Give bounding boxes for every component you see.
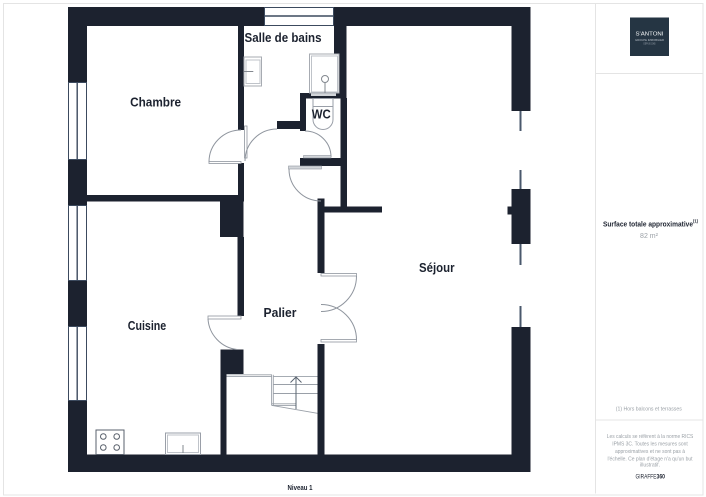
svg-text:Salle de bains: Salle de bains	[245, 30, 322, 45]
svg-text:IPMS 3C. Toutes les mesures so: IPMS 3C. Toutes les mesures sont	[612, 441, 688, 447]
svg-text:360: 360	[657, 474, 666, 481]
svg-text:82 m²: 82 m²	[640, 233, 659, 240]
svg-text:GIRAFFE: GIRAFFE	[636, 474, 657, 481]
svg-text:(1): (1)	[693, 219, 699, 224]
svg-text:S'ANTONI: S'ANTONI	[636, 32, 664, 38]
svg-text:Chambre: Chambre	[130, 95, 181, 110]
svg-text:WC: WC	[312, 107, 332, 122]
svg-text:Surface totale approximative: Surface totale approximative	[603, 219, 693, 228]
svg-text:illustratif.: illustratif.	[640, 463, 660, 469]
svg-text:Les calculs se réfèrent à la n: Les calculs se réfèrent à la norme RICS	[607, 434, 694, 440]
svg-text:l'échelle. Ce plan d'étage n'a: l'échelle. Ce plan d'étage n'a qu'un but	[608, 456, 693, 462]
svg-text:approximatives et ne sont pas: approximatives et ne sont pas à	[615, 449, 686, 455]
svg-text:GROUPE IMMOBILIER: GROUPE IMMOBILIER	[635, 38, 664, 42]
svg-text:Niveau 1: Niveau 1	[288, 483, 313, 492]
svg-text:Palier: Palier	[264, 305, 297, 320]
svg-text:DEPUIS 1965: DEPUIS 1965	[644, 44, 657, 46]
svg-text:(1) Hors balcons et terrasses: (1) Hors balcons et terrasses	[616, 406, 682, 412]
svg-text:Séjour: Séjour	[419, 260, 455, 275]
svg-text:Cuisine: Cuisine	[128, 318, 167, 333]
